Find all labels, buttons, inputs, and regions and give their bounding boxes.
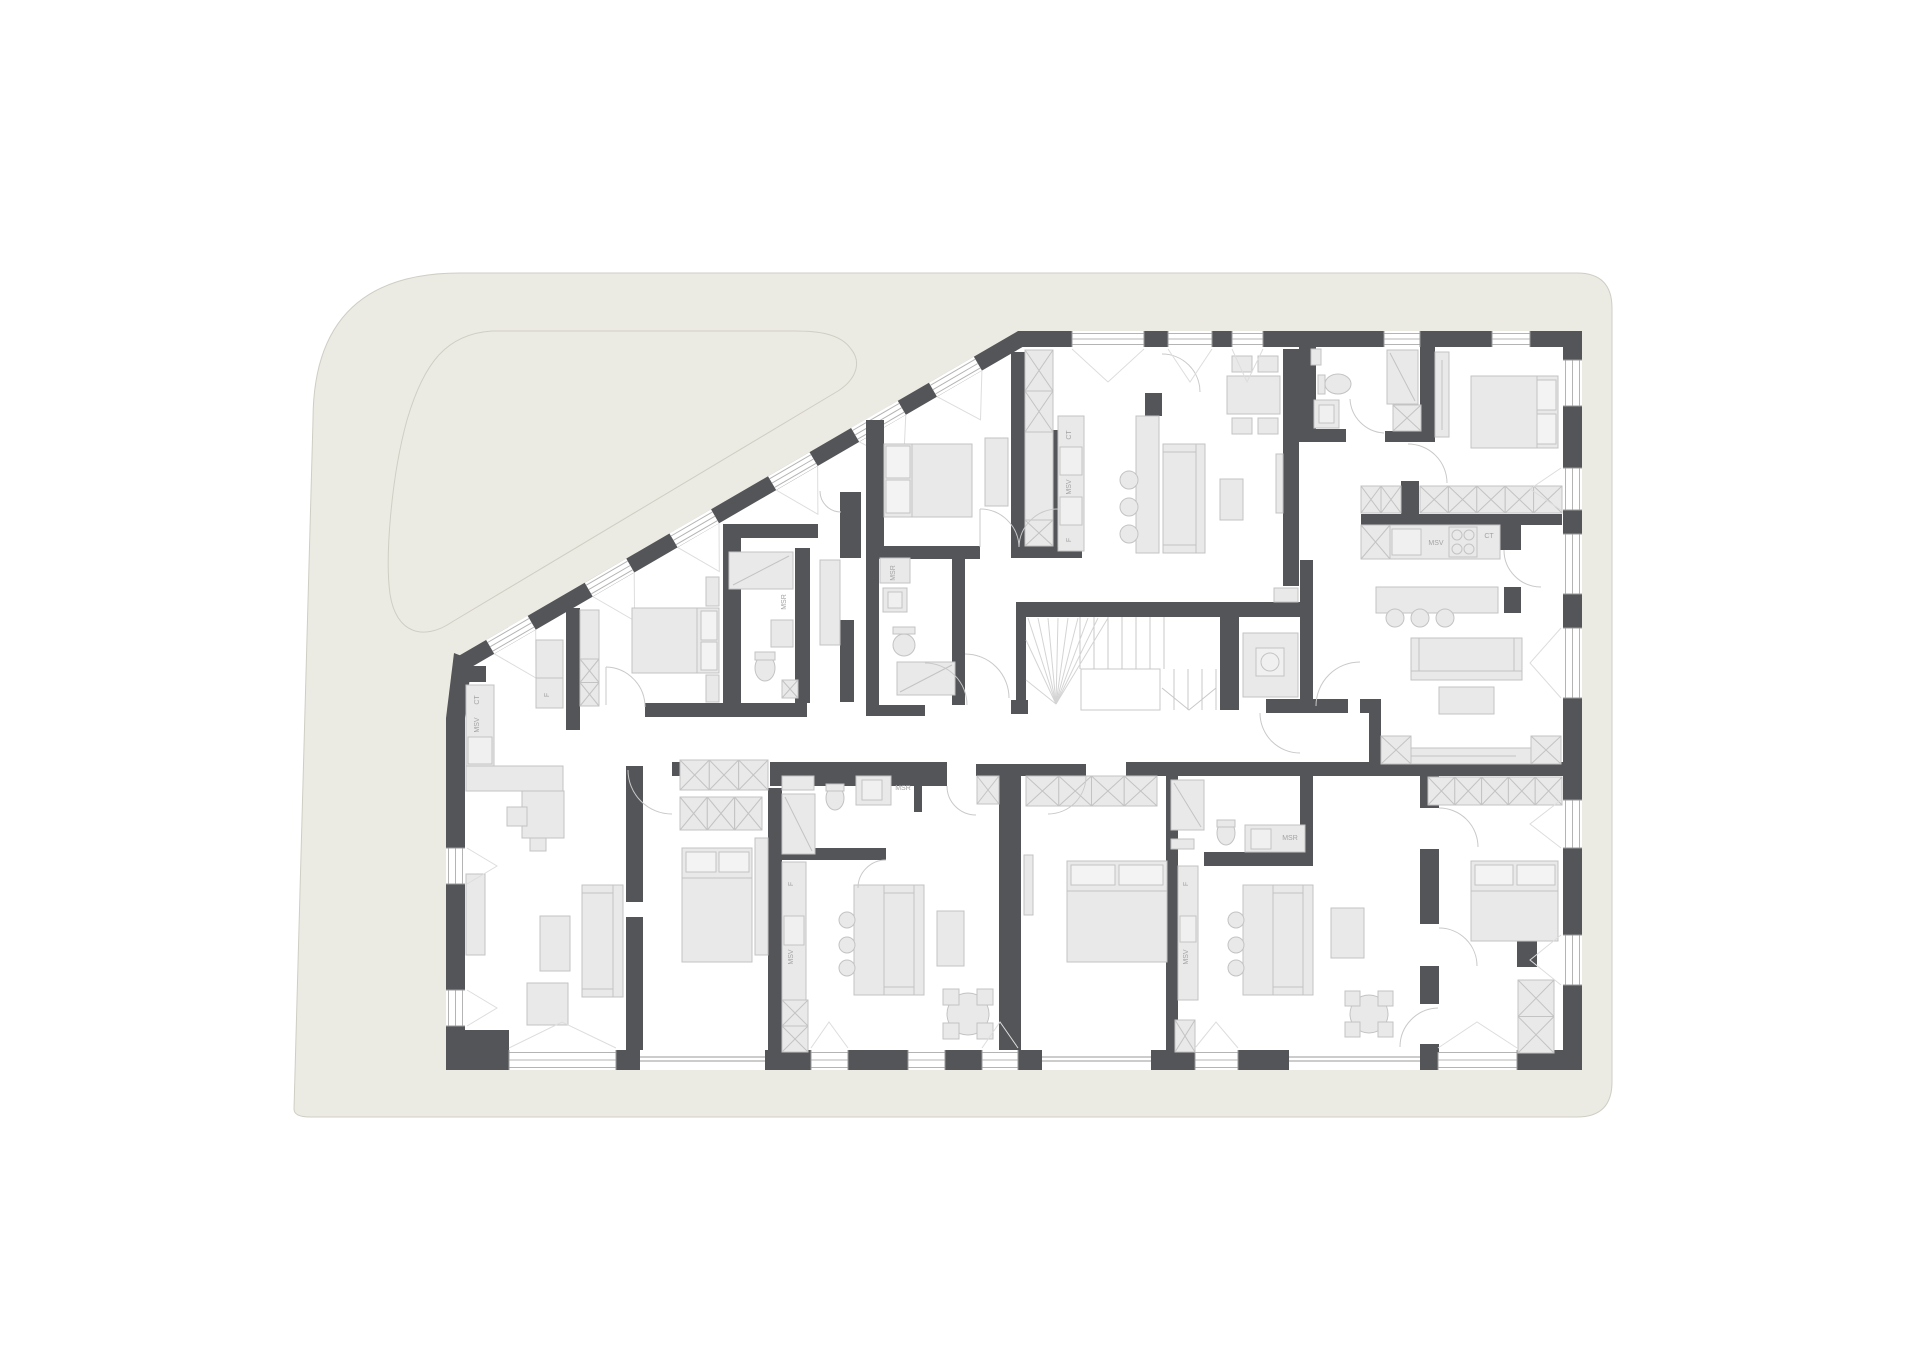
svg-text:MSV: MSV	[1066, 479, 1073, 495]
svg-text:CT: CT	[1484, 533, 1494, 540]
svg-text:MSV: MSV	[1428, 540, 1444, 547]
svg-text:MSV: MSV	[474, 717, 481, 733]
svg-text:MSR: MSR	[781, 594, 788, 610]
svg-text:F: F	[544, 693, 551, 697]
svg-text:MSR: MSR	[1282, 835, 1298, 842]
svg-text:F: F	[1183, 882, 1190, 886]
svg-text:MSR: MSR	[895, 785, 911, 792]
svg-text:MSV: MSV	[788, 949, 795, 965]
svg-text:CT: CT	[474, 695, 481, 705]
svg-text:MSR: MSR	[890, 565, 897, 581]
svg-text:F: F	[1066, 538, 1073, 542]
svg-text:MSV: MSV	[1183, 949, 1190, 965]
svg-text:F: F	[788, 882, 795, 886]
svg-text:CT: CT	[1066, 430, 1073, 440]
